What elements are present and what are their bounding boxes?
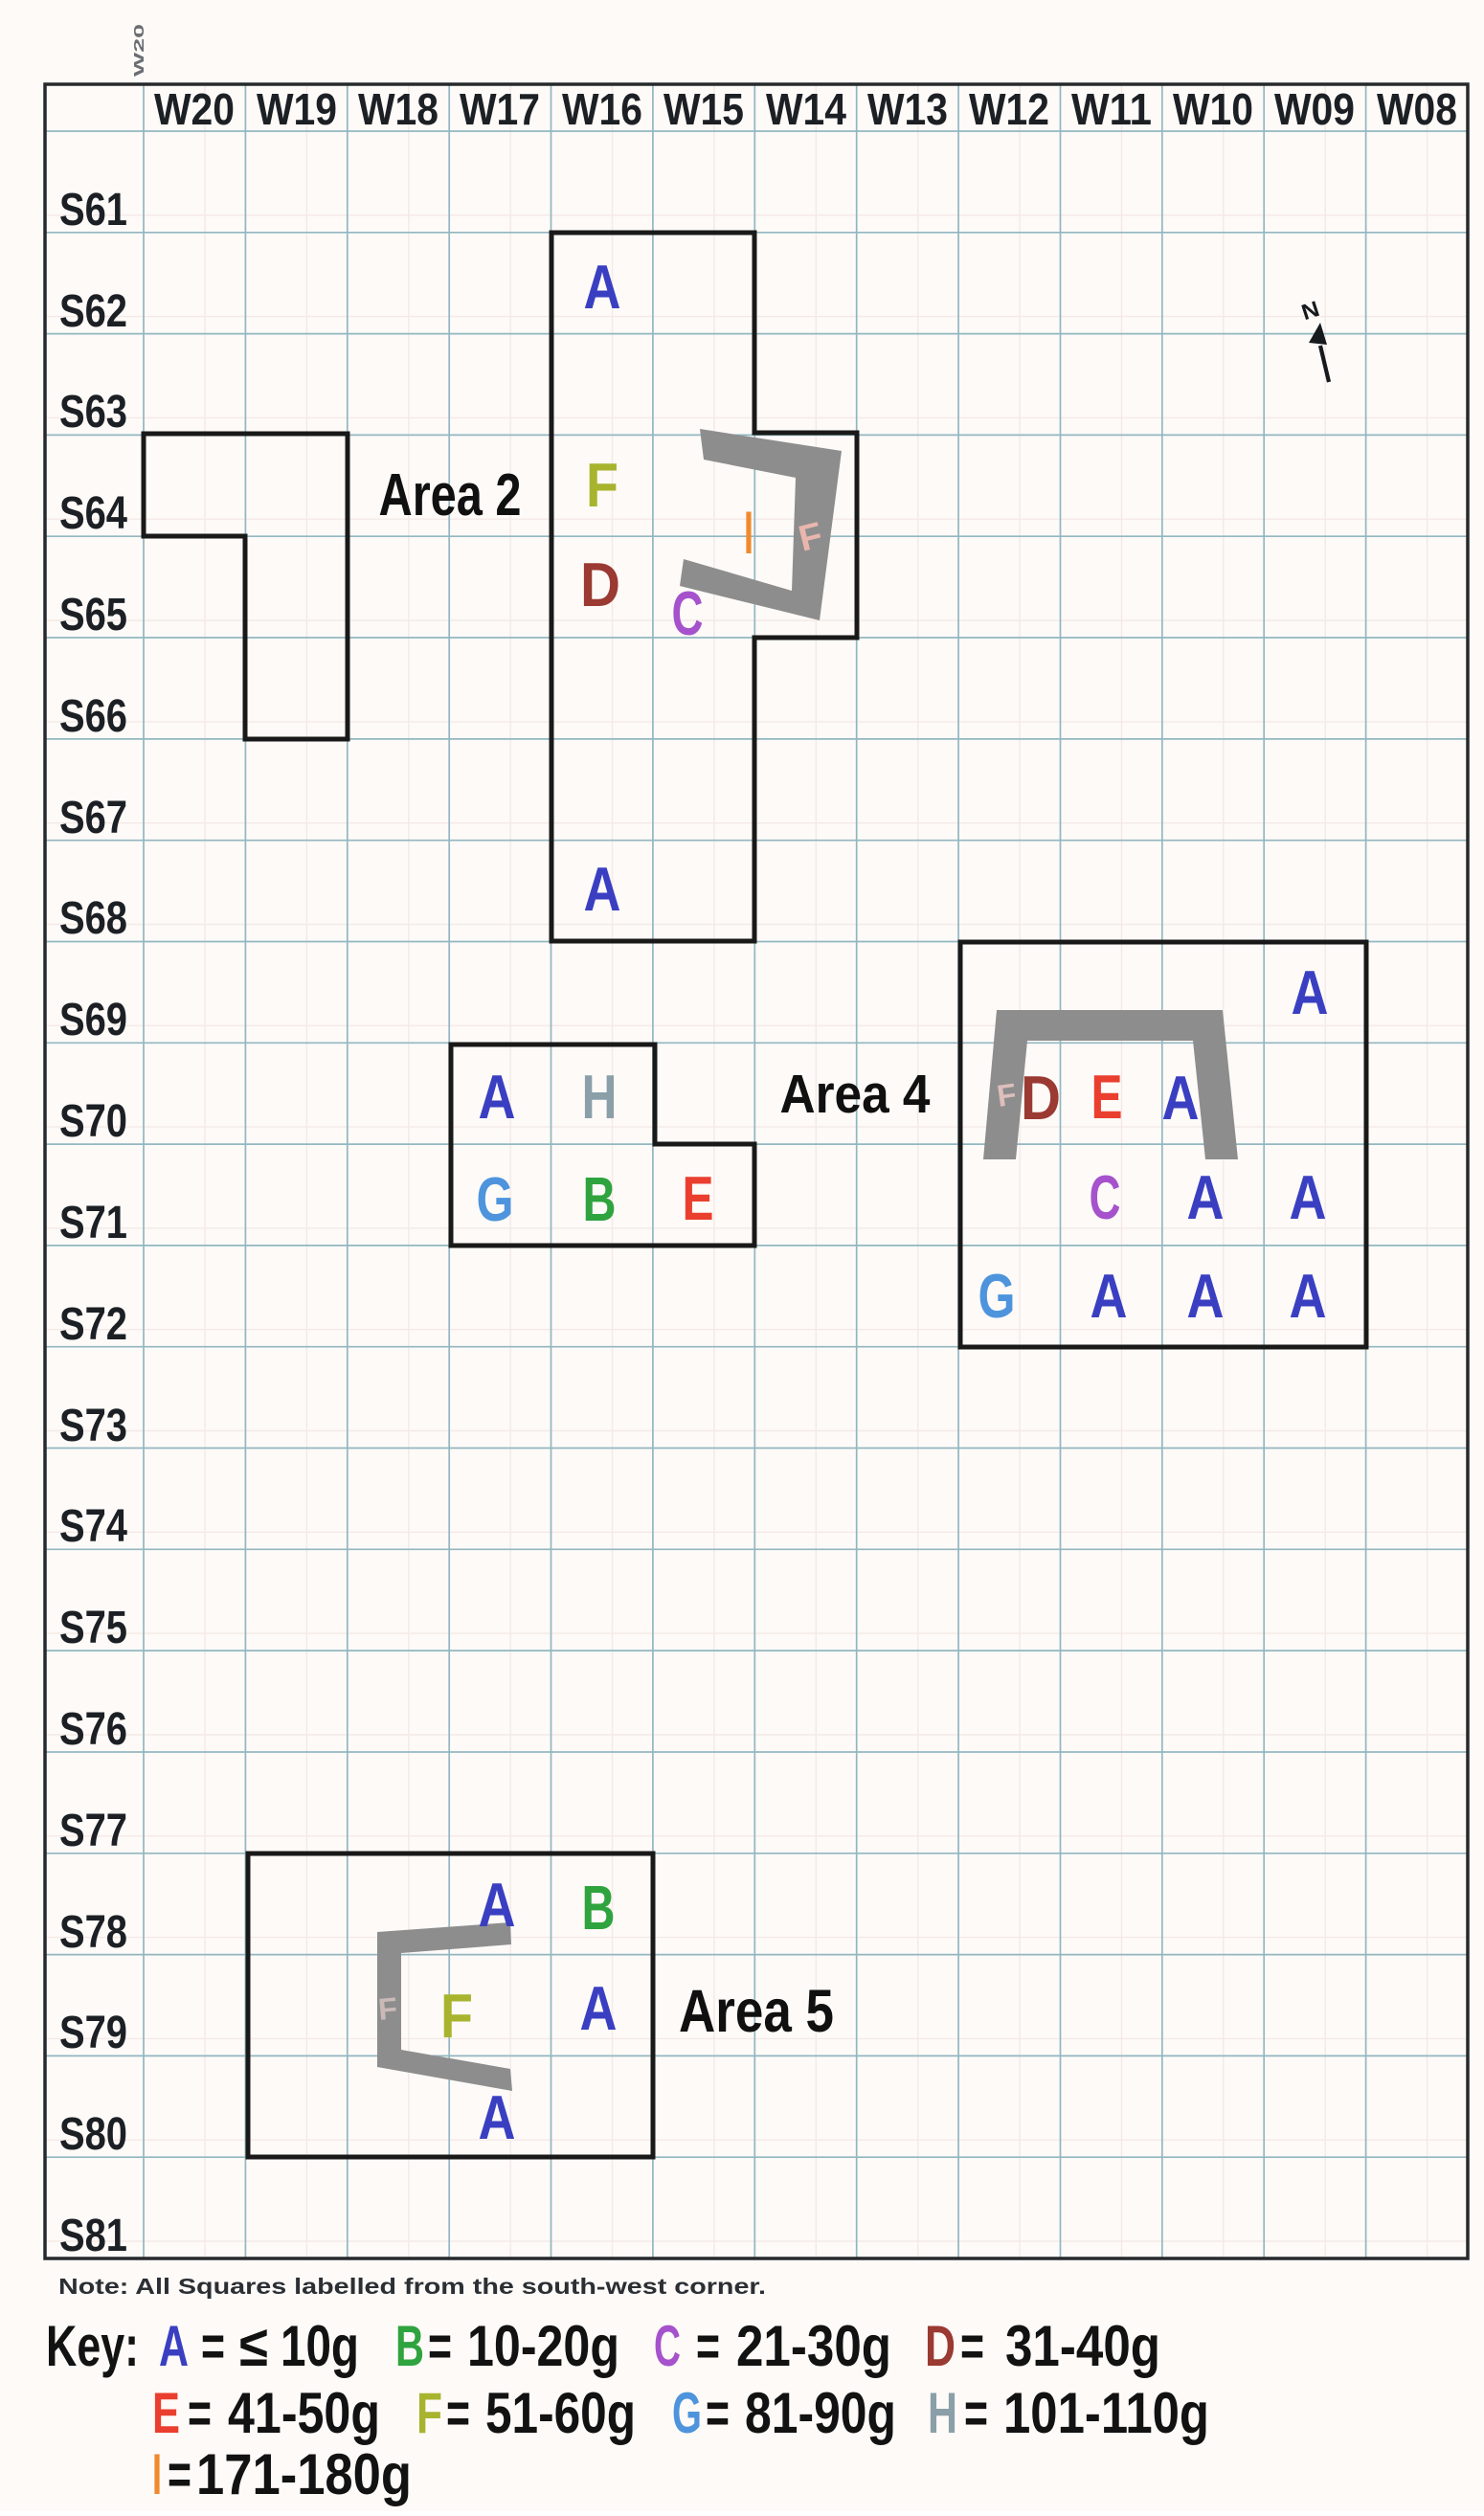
svg-text:B: B	[583, 1164, 617, 1234]
svg-text:G: G	[477, 1164, 514, 1234]
svg-text:E=41-50gF=51-60gG=81-90gH=101-: E=41-50gF=51-60gG=81-90gH=101-110g	[152, 2381, 1209, 2445]
svg-text:S78: S78	[59, 1907, 127, 1958]
svg-text:S81: S81	[59, 2211, 127, 2261]
svg-text:S65: S65	[59, 590, 127, 640]
svg-text:W09: W09	[1274, 84, 1355, 134]
svg-text:A: A	[584, 252, 621, 322]
svg-text:A: A	[1162, 1063, 1200, 1133]
svg-text:S67: S67	[59, 793, 127, 843]
svg-text:C: C	[1090, 1162, 1121, 1232]
svg-text:C: C	[672, 578, 704, 648]
svg-text:D: D	[1021, 1063, 1061, 1133]
svg-text:G: G	[978, 1261, 1016, 1331]
svg-text:F: F	[440, 1981, 473, 2051]
svg-text:S70: S70	[59, 1096, 127, 1147]
svg-text:S63: S63	[59, 387, 127, 438]
svg-text:S64: S64	[59, 488, 127, 539]
svg-text:I=171-180g: I=171-180g	[152, 2442, 412, 2506]
svg-text:W11: W11	[1071, 84, 1152, 134]
svg-text:W10: W10	[1173, 84, 1253, 134]
svg-text:A: A	[479, 2082, 516, 2152]
svg-text:S73: S73	[59, 1401, 127, 1451]
svg-text:W12: W12	[969, 84, 1049, 134]
svg-text:S74: S74	[59, 1501, 127, 1552]
svg-text:A: A	[1091, 1261, 1128, 1331]
svg-text:S72: S72	[59, 1299, 127, 1350]
svg-text:W18: W18	[358, 84, 438, 134]
svg-text:A: A	[580, 1973, 618, 2043]
svg-text:W13: W13	[867, 84, 948, 134]
svg-text:F: F	[376, 1990, 398, 2027]
svg-text:A: A	[479, 1870, 516, 1940]
svg-text:W14: W14	[766, 84, 846, 134]
svg-text:S62: S62	[59, 286, 127, 337]
svg-text:W17: W17	[460, 84, 540, 134]
svg-text:D: D	[580, 550, 620, 619]
svg-text:W15: W15	[663, 84, 744, 134]
svg-text:S68: S68	[59, 893, 127, 944]
svg-text:A: A	[1290, 1162, 1327, 1232]
svg-text:W20: W20	[154, 84, 235, 134]
svg-text:A: A	[1292, 957, 1329, 1027]
svg-text:S61: S61	[59, 185, 127, 236]
svg-text:S77: S77	[59, 1806, 127, 1856]
svg-text:A: A	[1290, 1261, 1327, 1331]
svg-text:S71: S71	[59, 1198, 127, 1248]
svg-text:I: I	[744, 500, 753, 567]
svg-text:Area 2: Area 2	[379, 462, 522, 528]
svg-text:Area 4: Area 4	[780, 1064, 931, 1125]
svg-text:W16: W16	[562, 84, 642, 134]
svg-text:W19: W19	[257, 84, 337, 134]
svg-text:A: A	[584, 854, 621, 924]
svg-text:E: E	[1091, 1062, 1123, 1132]
svg-text:F: F	[586, 450, 618, 520]
svg-text:B: B	[582, 1873, 616, 1943]
svg-text:A: A	[1187, 1261, 1225, 1331]
svg-text:S75: S75	[59, 1603, 127, 1653]
svg-text:S69: S69	[59, 995, 127, 1045]
svg-text:Note: All Squares labelled fro: Note: All Squares labelled from the sout…	[58, 2274, 766, 2299]
svg-text:A: A	[479, 1062, 516, 1132]
svg-text:W08: W08	[1377, 84, 1457, 134]
svg-text:E: E	[683, 1163, 714, 1233]
svg-text:S80: S80	[59, 2109, 127, 2160]
svg-text:Area 5: Area 5	[679, 1978, 834, 2045]
svg-text:S79: S79	[59, 2008, 127, 2058]
svg-text:H: H	[582, 1062, 618, 1132]
svg-text:S66: S66	[59, 691, 127, 742]
svg-text:W20: W20	[131, 24, 147, 77]
svg-text:A: A	[1187, 1162, 1225, 1232]
svg-text:S76: S76	[59, 1704, 127, 1755]
